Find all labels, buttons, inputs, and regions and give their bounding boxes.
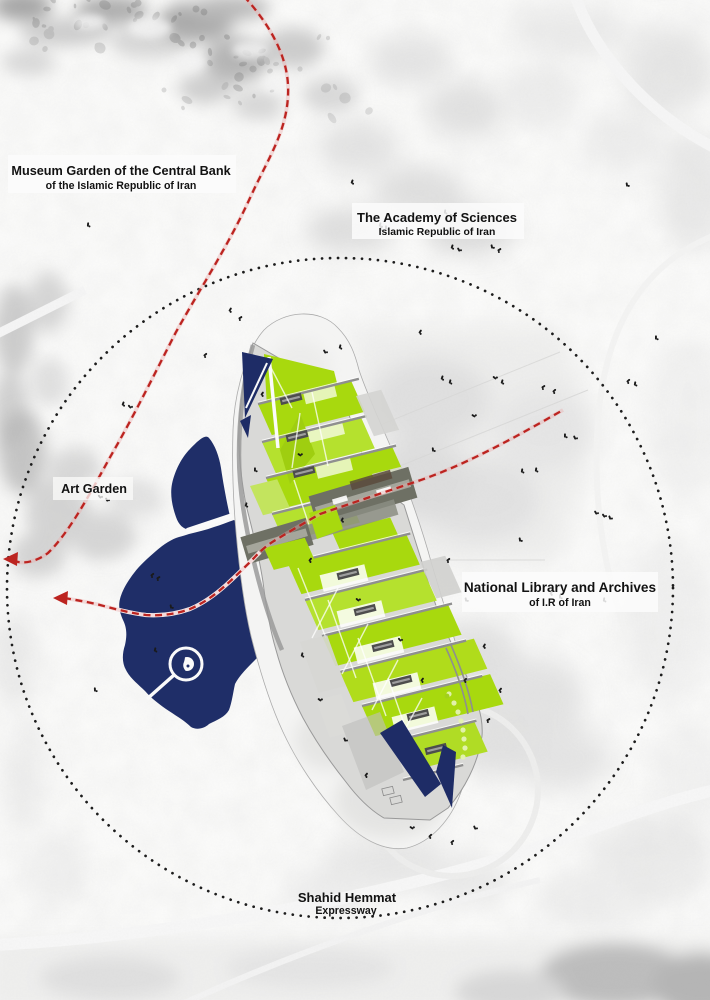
svg-text:Art Garden: Art Garden [61, 482, 127, 496]
svg-text:of I.R of Iran: of I.R of Iran [529, 597, 591, 609]
svg-text:Expressway: Expressway [315, 905, 376, 917]
svg-text:National Library and Archives: National Library and Archives [464, 580, 656, 595]
svg-text:Museum Garden of the Central B: Museum Garden of the Central Bank [11, 164, 231, 178]
svg-text:of the Islamic Republic of Ira: of the Islamic Republic of Iran [46, 180, 197, 192]
svg-text:The Academy of Sciences: The Academy of Sciences [357, 210, 517, 225]
svg-text:Shahid Hemmat: Shahid Hemmat [298, 890, 397, 905]
svg-text:Islamic Republic of Iran: Islamic Republic of Iran [379, 227, 496, 238]
